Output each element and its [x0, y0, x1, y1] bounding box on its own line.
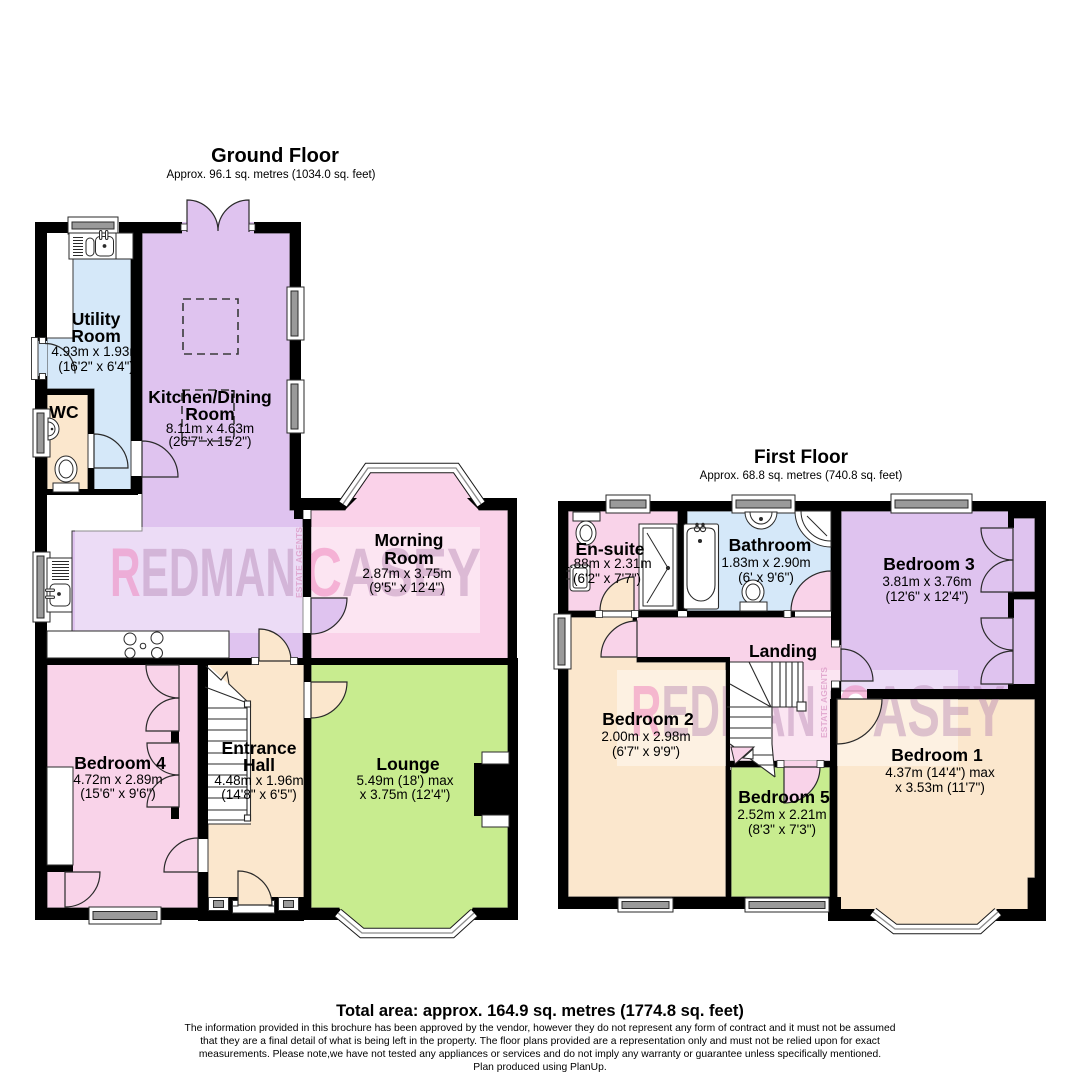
svg-text:REDMAN: REDMAN — [110, 534, 296, 611]
svg-text:Bedroom 1: Bedroom 1 — [891, 745, 983, 765]
svg-text:Bedroom 3: Bedroom 3 — [883, 554, 975, 574]
svg-text:Plan produced using PlanUp.: Plan produced using PlanUp. — [473, 1062, 606, 1073]
svg-text:4.72m x 2.89m: 4.72m x 2.89m — [73, 772, 162, 787]
svg-text:2.00m x 2.98m: 2.00m x 2.98m — [601, 729, 690, 744]
svg-text:(9'5" x 12'4"): (9'5" x 12'4") — [369, 580, 445, 595]
svg-text:4.93m x 1.93m: 4.93m x 1.93m — [51, 344, 140, 359]
svg-text:Morning: Morning — [374, 530, 443, 550]
svg-text:Ground Floor: Ground Floor — [211, 145, 339, 167]
svg-text:Approx. 96.1 sq. metres (1034.: Approx. 96.1 sq. metres (1034.0 sq. feet… — [166, 169, 375, 181]
svg-text:3.81m x 3.76m: 3.81m x 3.76m — [882, 574, 971, 589]
svg-text:Bedroom 4: Bedroom 4 — [74, 753, 166, 773]
svg-text:(8'3" x 7'3"): (8'3" x 7'3") — [748, 822, 816, 837]
svg-text:1.88m x 2.31m: 1.88m x 2.31m — [562, 556, 651, 571]
svg-text:measurements. Please note,we h: measurements. Please note,we have not te… — [199, 1049, 881, 1060]
svg-text:(6'2" x 7'7"): (6'2" x 7'7") — [573, 571, 641, 586]
svg-text:Total area: approx. 164.9 sq.: Total area: approx. 164.9 sq. metres (17… — [336, 1002, 744, 1020]
svg-text:Room: Room — [71, 326, 121, 346]
svg-text:5.49m (18') max: 5.49m (18') max — [356, 773, 453, 788]
svg-text:(26'7" x 15'2"): (26'7" x 15'2") — [168, 434, 251, 449]
svg-text:Room: Room — [384, 548, 434, 568]
svg-text:ESTATE AGENTS: ESTATE AGENTS — [294, 527, 304, 598]
svg-text:2.52m x 2.21m: 2.52m x 2.21m — [737, 807, 826, 822]
svg-text:First Floor: First Floor — [754, 447, 849, 468]
svg-text:(12'6" x 12'4"): (12'6" x 12'4") — [885, 589, 968, 604]
svg-text:1.83m x 2.90m: 1.83m x 2.90m — [721, 555, 810, 570]
svg-text:4.37m (14'4") max: 4.37m (14'4") max — [885, 765, 995, 780]
svg-text:4.48m x 1.96m: 4.48m x 1.96m — [214, 773, 303, 788]
svg-text:(6'7" x 9'9"): (6'7" x 9'9") — [612, 744, 680, 759]
svg-text:WC: WC — [49, 402, 79, 422]
svg-text:x 3.53m (11'7"): x 3.53m (11'7") — [895, 780, 985, 795]
svg-text:Lounge: Lounge — [376, 754, 439, 774]
svg-text:(6' x 9'6"): (6' x 9'6") — [738, 570, 794, 585]
svg-text:2.87m x 3.75m: 2.87m x 3.75m — [362, 566, 451, 581]
svg-text:Bedroom 5: Bedroom 5 — [738, 787, 830, 807]
svg-text:(16'2" x 6'4"): (16'2" x 6'4") — [58, 359, 134, 374]
svg-text:The information provided in th: The information provided in this brochur… — [185, 1023, 896, 1034]
svg-text:Bedroom 2: Bedroom 2 — [602, 709, 694, 729]
svg-text:that they are a final detail o: that they are a final detail of what is … — [200, 1036, 880, 1047]
svg-text:(15'6" x 9'6"): (15'6" x 9'6") — [80, 786, 156, 801]
svg-text:x 3.75m (12'4"): x 3.75m (12'4") — [360, 787, 451, 802]
svg-text:(14'8" x 6'5"): (14'8" x 6'5") — [221, 787, 297, 802]
svg-text:Approx. 68.8 sq. metres (740.8: Approx. 68.8 sq. metres (740.8 sq. feet) — [700, 470, 903, 482]
svg-text:Hall: Hall — [243, 755, 275, 775]
svg-text:ESTATE AGENTS: ESTATE AGENTS — [819, 667, 829, 738]
svg-text:Bathroom: Bathroom — [729, 535, 812, 555]
svg-text:Landing: Landing — [749, 641, 817, 661]
